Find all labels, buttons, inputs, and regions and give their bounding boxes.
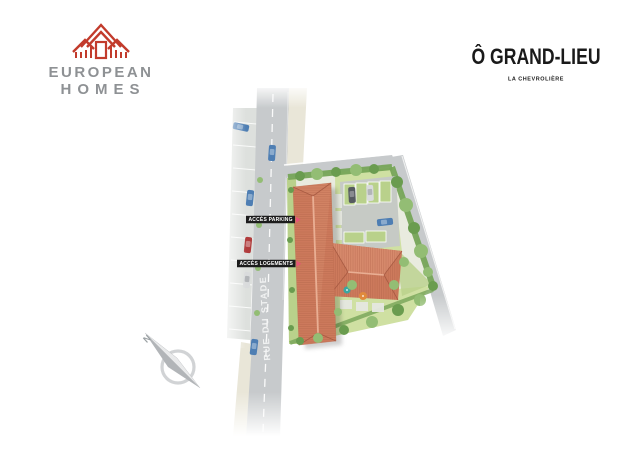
access-parking-text: ACCÈS PARKING xyxy=(246,216,295,224)
car xyxy=(268,145,276,161)
site-plan-page: EUROPEAN HOMES Ô GRAND-LIEU LA CHEVROLIÈ… xyxy=(0,0,640,470)
access-arrow-icon xyxy=(296,217,301,223)
masterplan-drawing: RUE DU STADE N xyxy=(0,0,640,470)
building-east-wing xyxy=(329,243,402,300)
access-housing-text: ACCÈS LOGEMENTS xyxy=(237,260,296,268)
access-housing-label: ACCÈS LOGEMENTS xyxy=(237,260,301,268)
car xyxy=(366,185,374,201)
access-arrow-icon xyxy=(297,261,302,267)
north-compass-icon: N xyxy=(141,333,200,388)
car xyxy=(348,187,356,203)
access-parking-label: ACCÈS PARKING xyxy=(246,216,301,224)
compass-north-letter: N xyxy=(141,333,153,345)
